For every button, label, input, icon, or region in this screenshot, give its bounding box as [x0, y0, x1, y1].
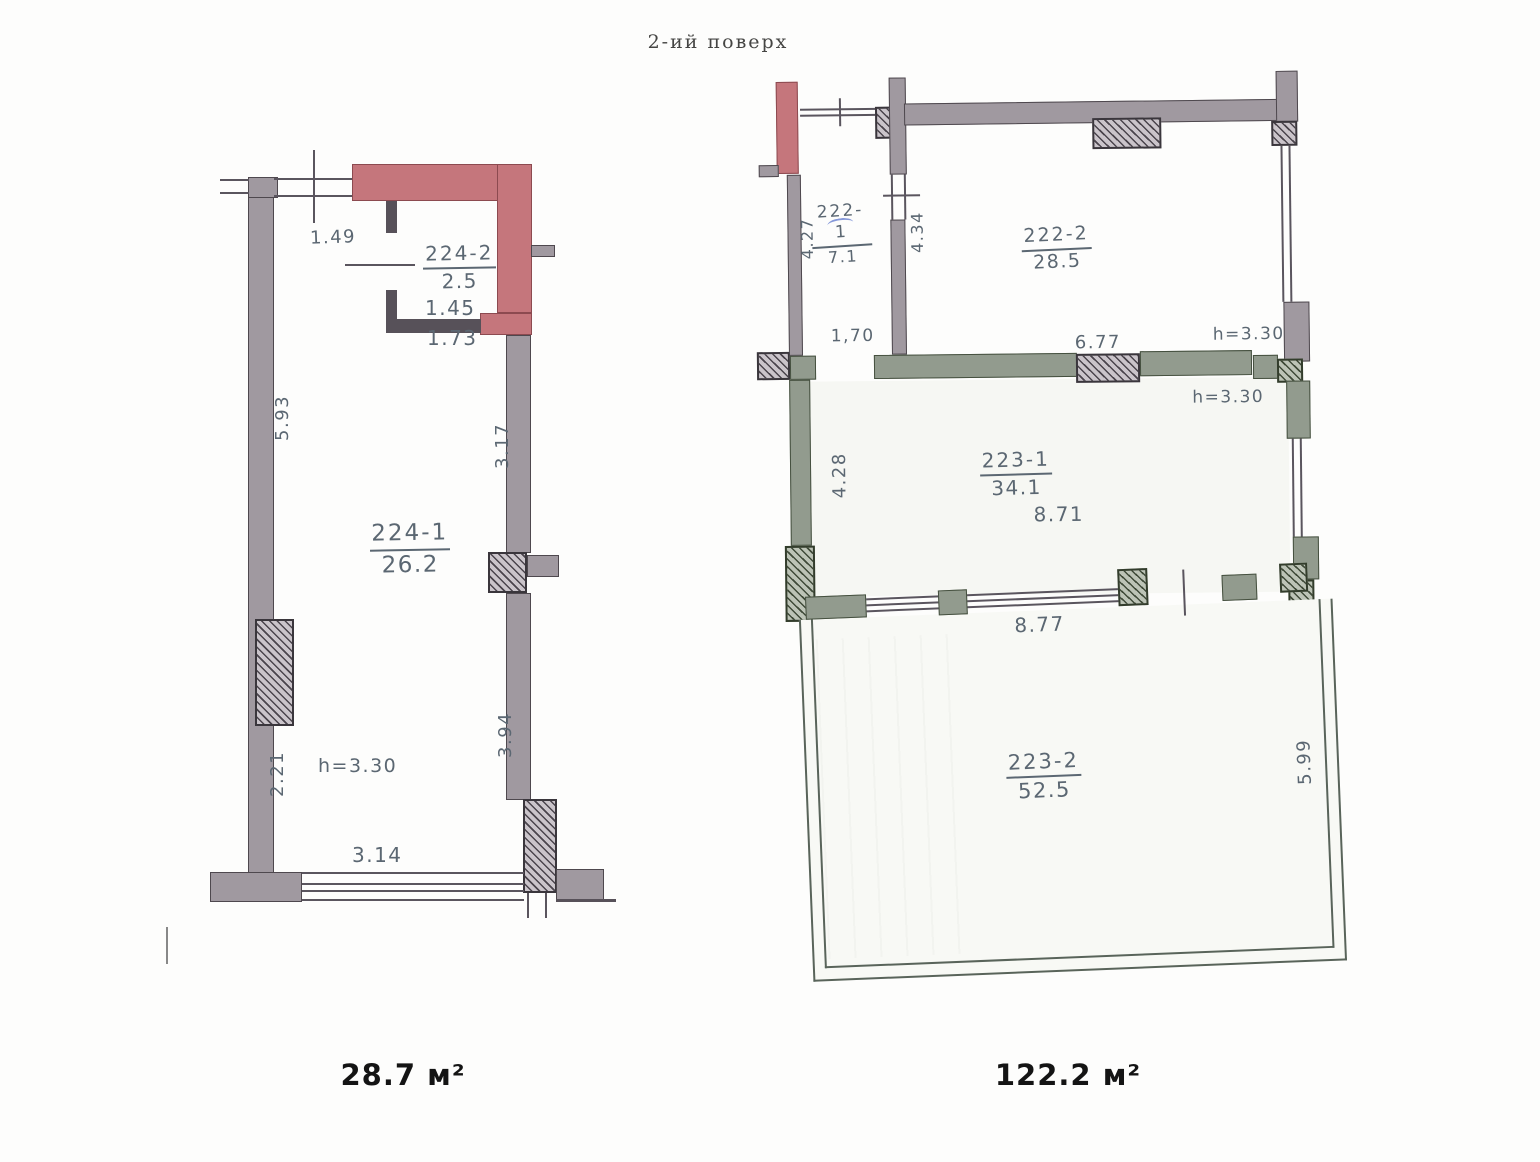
wall-segment: [805, 594, 867, 619]
dimension-label: 5.99: [1294, 728, 1316, 795]
plan-section-223-2: 8.77 223-2 52.5 5.99: [0, 0, 1540, 1162]
window: [866, 588, 1122, 600]
hatched-column: [1279, 563, 1308, 593]
wall-segment: [938, 589, 968, 615]
total-area-label: 28.7 м²: [298, 1058, 508, 1092]
scan-artifact: [816, 633, 979, 959]
room-label: 223-2 52.5: [1000, 747, 1087, 806]
room-area: 52.5: [1001, 776, 1087, 806]
wall-segment: [1221, 574, 1257, 601]
floor-plan-page: 2-ий поверх: [0, 0, 1540, 1162]
room-number: 223-2: [1005, 747, 1081, 779]
dimension-label: 8.77: [1014, 612, 1065, 636]
hatched-column: [1117, 568, 1148, 606]
total-area-label: 122.2 м²: [948, 1058, 1188, 1092]
